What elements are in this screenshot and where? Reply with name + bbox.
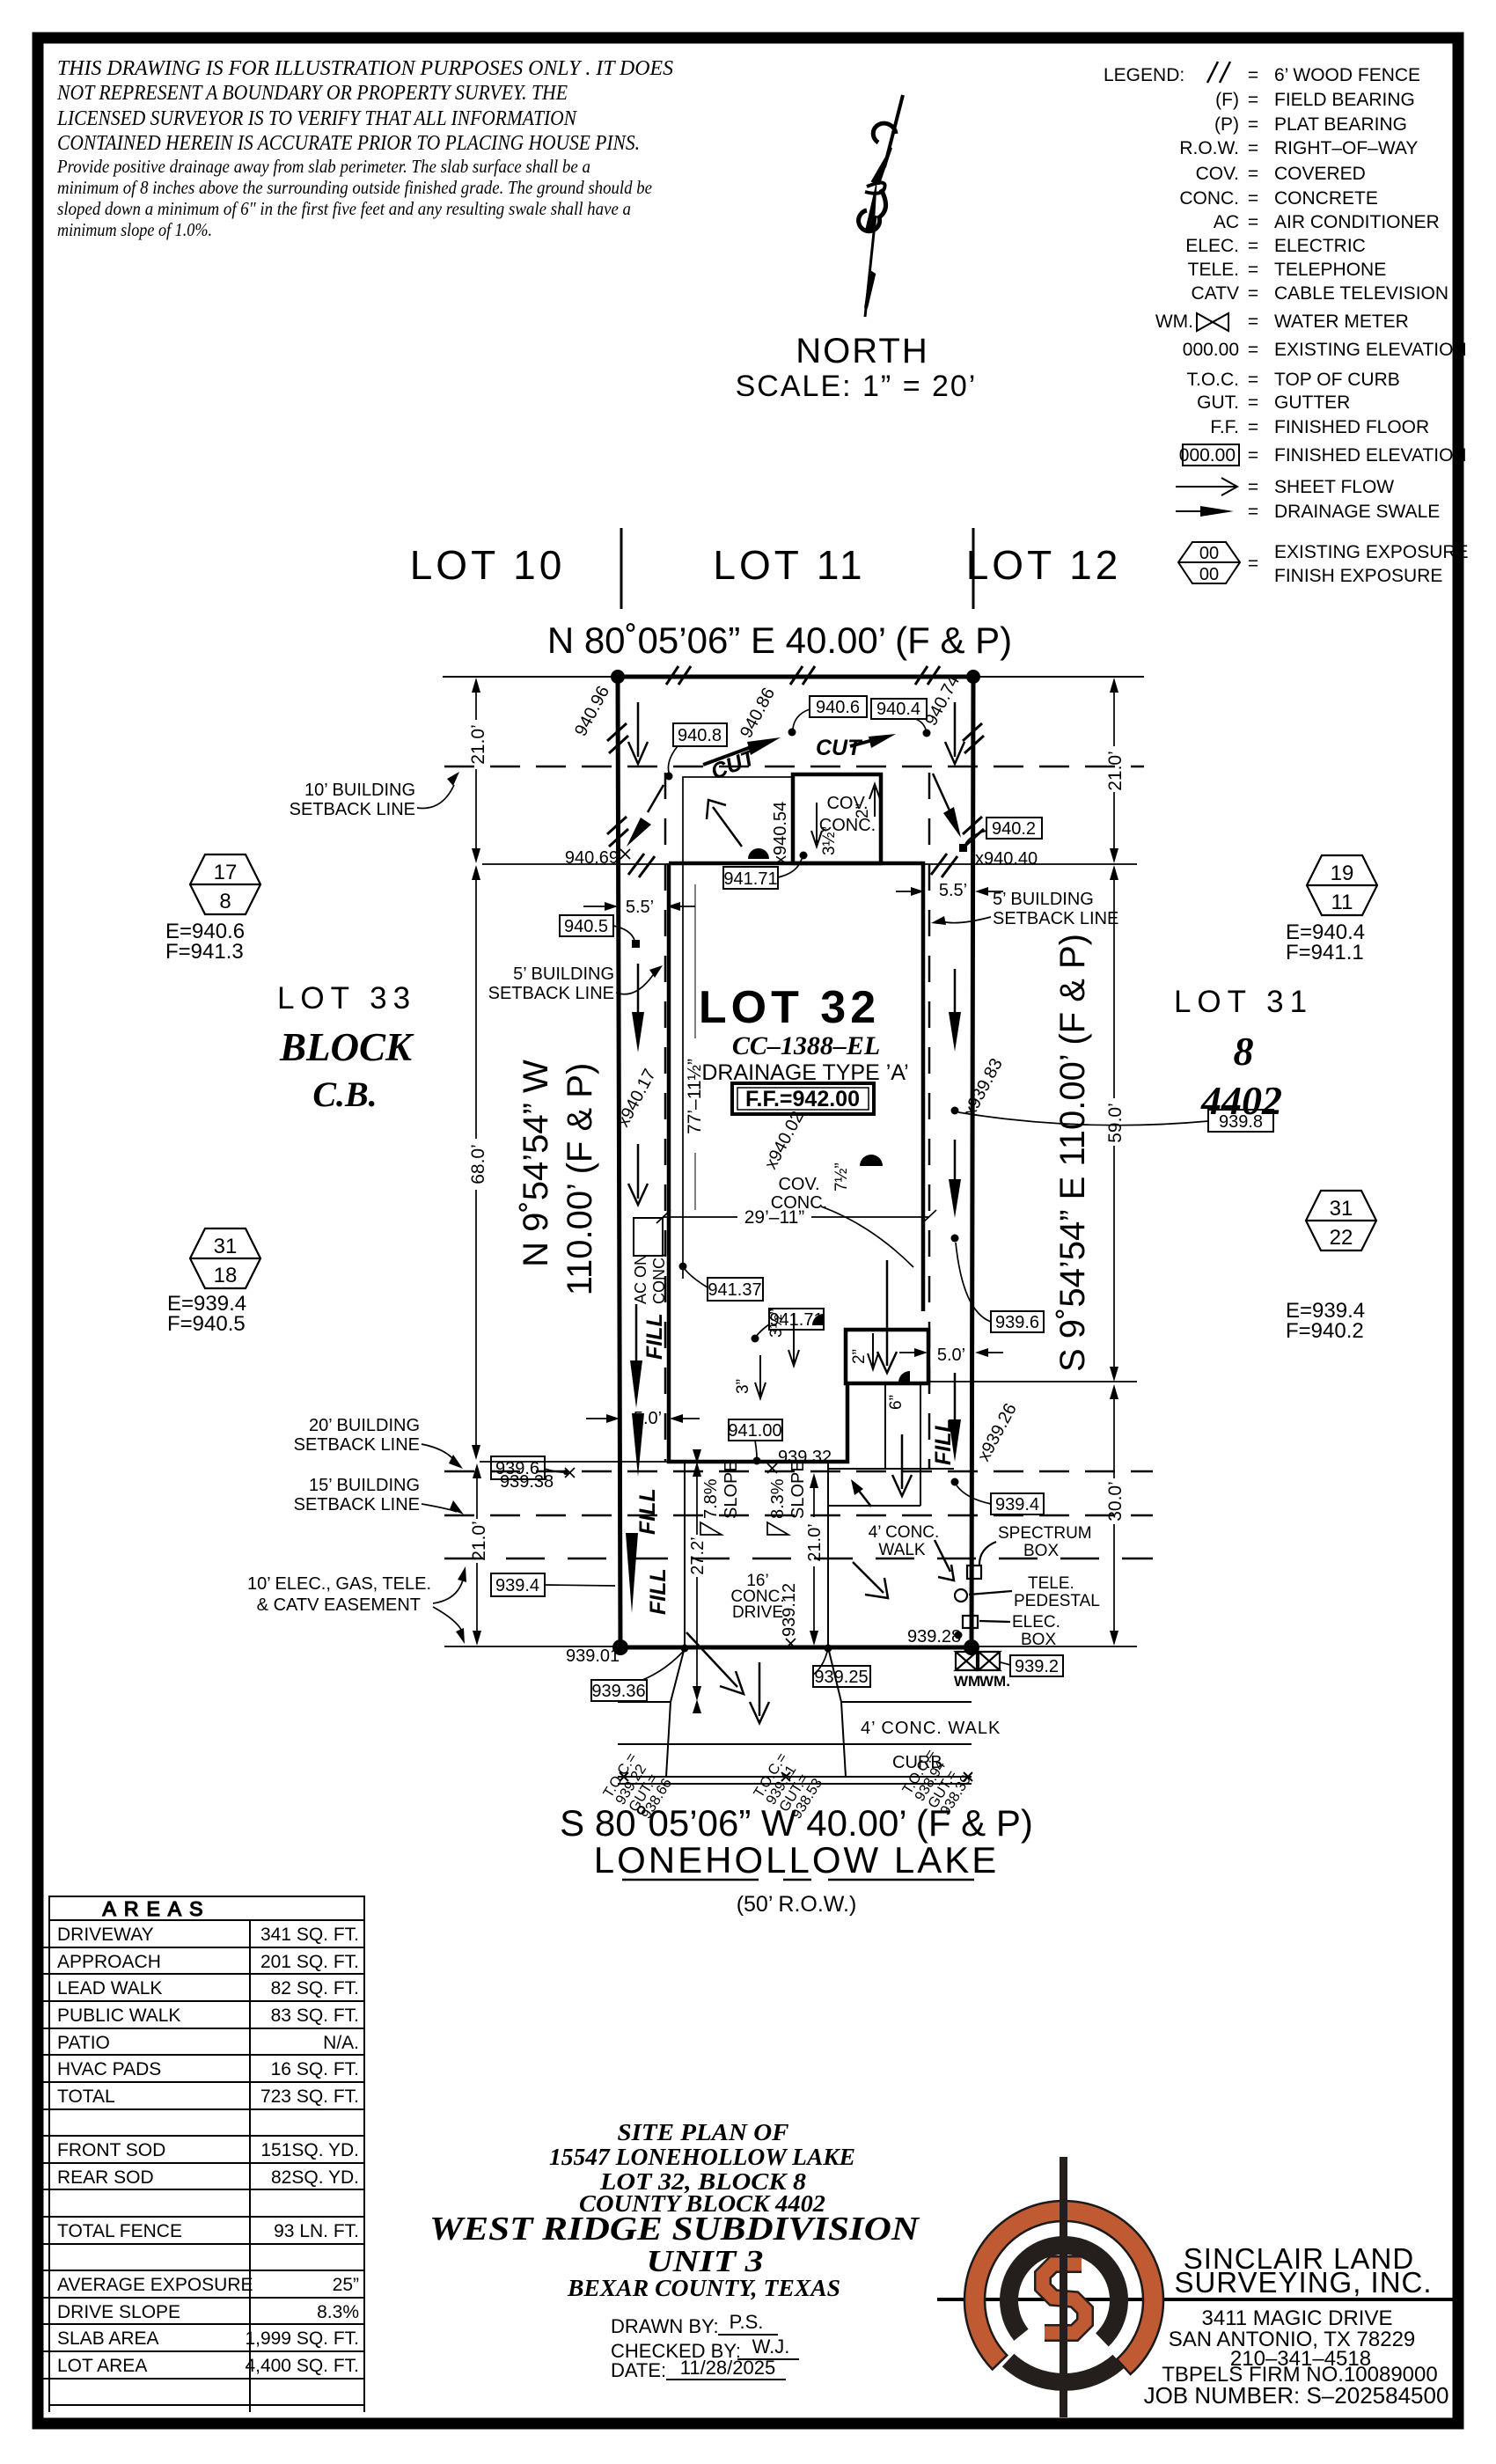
svg-text:723 SQ. FT.: 723 SQ. FT. bbox=[260, 2086, 359, 2107]
svg-text:FILL: FILL bbox=[646, 1568, 671, 1615]
svg-text:941.00: 941.00 bbox=[728, 1421, 781, 1441]
svg-text:WEST RIDGE SUBDIVISION: WEST RIDGE SUBDIVISION bbox=[429, 2211, 920, 2248]
svg-text:FRONT SOD: FRONT SOD bbox=[57, 2140, 165, 2160]
svg-text:LOT 12: LOT 12 bbox=[966, 542, 1122, 588]
svg-text:110.00’ (F & P): 110.00’ (F & P) bbox=[561, 1063, 599, 1296]
svg-text:940.6: 940.6 bbox=[816, 698, 860, 717]
svg-text:LONEHOLLOW LAKE: LONEHOLLOW LAKE bbox=[594, 1839, 999, 1881]
svg-text:4’ CONC.: 4’ CONC. bbox=[869, 1523, 940, 1542]
svg-text:19: 19 bbox=[1331, 862, 1354, 885]
svg-text:CONC.: CONC. bbox=[650, 1253, 668, 1304]
svg-text:SLAB AREA: SLAB AREA bbox=[57, 2328, 159, 2349]
svg-text:PLAT BEARING: PLAT BEARING bbox=[1274, 114, 1407, 135]
svg-text:940.74: 940.74 bbox=[921, 672, 964, 729]
svg-text:TOP OF CURB: TOP OF CURB bbox=[1274, 370, 1400, 390]
svg-text:CATV: CATV bbox=[1192, 283, 1239, 304]
svg-text:ELECTRIC: ELECTRIC bbox=[1274, 236, 1366, 256]
svg-text:REAR SOD: REAR SOD bbox=[57, 2167, 154, 2188]
svg-text:(P): (P) bbox=[1214, 114, 1239, 135]
svg-text:SLOPE: SLOPE bbox=[788, 1460, 808, 1519]
svg-text:JOB NUMBER: S–202584500: JOB NUMBER: S–202584500 bbox=[1144, 2382, 1449, 2409]
svg-text:LEAD WALK: LEAD WALK bbox=[57, 1978, 162, 1998]
svg-text:F.F.: F.F. bbox=[1210, 417, 1239, 437]
svg-text:940.2: 940.2 bbox=[992, 819, 1036, 839]
svg-text:WM.: WM. bbox=[979, 1673, 1010, 1690]
svg-text:00: 00 bbox=[1199, 544, 1219, 563]
svg-text:940.69: 940.69 bbox=[565, 848, 619, 868]
svg-text:=: = bbox=[1248, 212, 1258, 232]
svg-text:=: = bbox=[1248, 236, 1258, 256]
svg-text:F=941.3: F=941.3 bbox=[165, 940, 244, 964]
svg-text:=: = bbox=[1248, 370, 1258, 390]
svg-text:TELEPHONE: TELEPHONE bbox=[1274, 260, 1386, 280]
svg-text:82SQ. YD.: 82SQ. YD. bbox=[271, 2167, 359, 2188]
svg-text:=: = bbox=[1248, 340, 1258, 360]
svg-text:F=940.2: F=940.2 bbox=[1286, 1319, 1364, 1343]
svg-text:GUT.: GUT. bbox=[1197, 392, 1239, 413]
svg-text:30.0’: 30.0’ bbox=[1105, 1481, 1126, 1522]
svg-text:939.36: 939.36 bbox=[591, 1682, 645, 1701]
svg-text:LOT 32: LOT 32 bbox=[699, 982, 880, 1033]
svg-text:940.86: 940.86 bbox=[737, 685, 779, 741]
svg-text:CONC.: CONC. bbox=[1179, 188, 1239, 209]
svg-text:941.37: 941.37 bbox=[708, 1280, 761, 1300]
svg-text:COV.: COV. bbox=[778, 1175, 819, 1194]
svg-text:5.0’: 5.0’ bbox=[937, 1346, 965, 1365]
svg-text:UNIT 3: UNIT 3 bbox=[647, 2244, 764, 2278]
svg-text:SLOPE: SLOPE bbox=[722, 1460, 741, 1519]
svg-text:=: = bbox=[1248, 65, 1258, 85]
svg-text:HVAC PADS: HVAC PADS bbox=[57, 2059, 161, 2079]
svg-text:939.2: 939.2 bbox=[1015, 1657, 1059, 1676]
svg-text:LOT 11: LOT 11 bbox=[713, 542, 865, 588]
svg-text:3½”: 3½” bbox=[767, 1309, 786, 1338]
svg-text:PATIO: PATIO bbox=[57, 2033, 110, 2053]
svg-text:minimum slope of 1.0%.: minimum slope of 1.0%. bbox=[57, 219, 212, 240]
svg-text:& CATV EASEMENT: & CATV EASEMENT bbox=[257, 1595, 421, 1615]
svg-text:LEGEND:: LEGEND: bbox=[1104, 65, 1184, 85]
svg-text:AIR CONDITIONER: AIR CONDITIONER bbox=[1274, 212, 1440, 232]
svg-text:COVERED: COVERED bbox=[1274, 164, 1366, 184]
svg-text:AVERAGE EXPOSURE: AVERAGE EXPOSURE bbox=[57, 2275, 253, 2295]
svg-text:939.25: 939.25 bbox=[814, 1668, 868, 1687]
svg-text:DRIVE SLOPE: DRIVE SLOPE bbox=[57, 2302, 180, 2322]
svg-text:22: 22 bbox=[1330, 1226, 1353, 1250]
svg-text:LOT 33: LOT 33 bbox=[277, 981, 416, 1016]
svg-text:7½”: 7½” bbox=[832, 1162, 851, 1192]
svg-text:=: = bbox=[1248, 283, 1258, 304]
svg-text:939.4: 939.4 bbox=[995, 1495, 1039, 1514]
svg-text:940.4: 940.4 bbox=[876, 700, 920, 719]
svg-text:4’ CONC. WALK: 4’ CONC. WALK bbox=[861, 1719, 1001, 1738]
svg-text:8.3%: 8.3% bbox=[768, 1478, 788, 1519]
svg-text:SETBACK LINE: SETBACK LINE bbox=[294, 1495, 420, 1514]
svg-text:AC: AC bbox=[1214, 212, 1239, 232]
svg-text:16 SQ. FT.: 16 SQ. FT. bbox=[271, 2059, 359, 2079]
svg-text:FINISH EXPOSURE: FINISH EXPOSURE bbox=[1274, 566, 1442, 586]
svg-text:=: = bbox=[1248, 445, 1258, 466]
svg-text:SPECTRUM: SPECTRUM bbox=[998, 1524, 1092, 1543]
svg-text:CABLE TELEVISION: CABLE TELEVISION bbox=[1274, 283, 1448, 304]
svg-text:SETBACK LINE: SETBACK LINE bbox=[290, 800, 415, 819]
svg-text:939.6: 939.6 bbox=[995, 1313, 1039, 1332]
svg-text:ELEC.: ELEC. bbox=[1185, 236, 1239, 256]
svg-text:59.0’: 59.0’ bbox=[1105, 1103, 1126, 1143]
svg-text:FIELD BEARING: FIELD BEARING bbox=[1274, 90, 1415, 110]
svg-text:=: = bbox=[1248, 502, 1258, 522]
svg-text:2”: 2” bbox=[850, 1349, 869, 1364]
svg-text:3411 MAGIC DRIVE: 3411 MAGIC DRIVE bbox=[1202, 2306, 1393, 2330]
svg-text:18: 18 bbox=[214, 1264, 238, 1287]
svg-text:TOTAL FENCE: TOTAL FENCE bbox=[57, 2221, 182, 2241]
svg-text:SETBACK LINE: SETBACK LINE bbox=[488, 984, 614, 1003]
svg-text:x940.54: x940.54 bbox=[771, 802, 790, 864]
svg-text:AREAS: AREAS bbox=[103, 1897, 211, 1920]
svg-text:FILL: FILL bbox=[635, 1488, 660, 1535]
svg-text:PEDESTAL: PEDESTAL bbox=[1014, 1592, 1100, 1610]
svg-text:000.00: 000.00 bbox=[1183, 340, 1239, 360]
svg-text:8: 8 bbox=[1234, 1029, 1254, 1074]
svg-text:RIGHT–OF–WAY: RIGHT–OF–WAY bbox=[1274, 138, 1418, 158]
svg-text:P.S.: P.S. bbox=[730, 2311, 764, 2333]
svg-text:SHEET FLOW: SHEET FLOW bbox=[1274, 477, 1394, 497]
svg-text:21.0’: 21.0’ bbox=[469, 1521, 489, 1561]
svg-text:F.F.=942.00: F.F.=942.00 bbox=[745, 1087, 860, 1111]
svg-text:=: = bbox=[1248, 477, 1258, 497]
svg-text:W.J.: W.J. bbox=[752, 2336, 790, 2358]
svg-text:BOX: BOX bbox=[1021, 1631, 1056, 1649]
svg-text:Provide positive drainage away: Provide positive drainage away from slab… bbox=[56, 156, 590, 177]
svg-text:2”: 2” bbox=[854, 803, 872, 818]
svg-text:83 SQ. FT.: 83 SQ. FT. bbox=[271, 2006, 359, 2026]
svg-text:=: = bbox=[1248, 312, 1258, 332]
svg-text:DRAINAGE SWALE: DRAINAGE SWALE bbox=[1274, 502, 1440, 522]
svg-text:ELEC.: ELEC. bbox=[1012, 1613, 1060, 1632]
svg-text:151SQ. YD.: 151SQ. YD. bbox=[260, 2140, 359, 2160]
svg-text:PUBLIC WALK: PUBLIC WALK bbox=[57, 2006, 180, 2026]
svg-text:CUT: CUT bbox=[816, 736, 863, 760]
svg-text:minimum of 8 inches above the: minimum of 8 inches above the surroundin… bbox=[57, 177, 652, 198]
svg-text:=: = bbox=[1248, 164, 1258, 184]
svg-text:939.01: 939.01 bbox=[566, 1646, 620, 1666]
svg-text:3”: 3” bbox=[734, 1379, 752, 1394]
svg-text:SETBACK LINE: SETBACK LINE bbox=[993, 909, 1118, 928]
svg-text:TOTAL: TOTAL bbox=[57, 2086, 115, 2107]
svg-text:CC–1388–EL: CC–1388–EL bbox=[732, 1031, 880, 1060]
svg-text:5.0’: 5.0’ bbox=[634, 1409, 662, 1428]
svg-text:FILL: FILL bbox=[931, 1419, 956, 1465]
svg-text:DRAWN BY:: DRAWN BY: bbox=[611, 2315, 719, 2337]
svg-text:DRIVE: DRIVE bbox=[732, 1603, 783, 1622]
svg-text:77’–11½”: 77’–11½” bbox=[685, 1059, 705, 1134]
svg-text:WM.: WM. bbox=[1155, 312, 1193, 332]
svg-text:=: = bbox=[1248, 114, 1258, 135]
svg-text:21.0’: 21.0’ bbox=[1105, 751, 1126, 791]
svg-text:BEXAR COUNTY, TEXAS: BEXAR COUNTY, TEXAS bbox=[567, 2275, 840, 2301]
svg-text:941.71: 941.71 bbox=[723, 869, 777, 889]
svg-text:17: 17 bbox=[214, 861, 238, 884]
svg-text:SURVEYING, INC.: SURVEYING, INC. bbox=[1174, 2266, 1432, 2299]
svg-text:x940.40: x940.40 bbox=[975, 849, 1038, 869]
svg-text:NOT REPRESENT A BOUNDARY OR PR: NOT REPRESENT A BOUNDARY OR PROPERTY SUR… bbox=[56, 82, 568, 105]
svg-text:x939.26: x939.26 bbox=[974, 1400, 1021, 1464]
svg-text:S 9˚54’54” E 110.00’ (F & P): S 9˚54’54” E 110.00’ (F & P) bbox=[1053, 934, 1092, 1372]
svg-text:(F): (F) bbox=[1215, 90, 1239, 110]
svg-text:4402: 4402 bbox=[1200, 1078, 1282, 1123]
svg-text:THIS DRAWING IS FOR ILLUSTRATI: THIS DRAWING IS FOR ILLUSTRATION PURPOSE… bbox=[57, 57, 673, 80]
svg-text:APPROACH: APPROACH bbox=[57, 1952, 161, 1972]
svg-text:5.5’: 5.5’ bbox=[626, 898, 654, 917]
svg-text:11: 11 bbox=[1331, 891, 1353, 914]
svg-text:4,400 SQ. FT.: 4,400 SQ. FT. bbox=[245, 2356, 359, 2376]
svg-text:BOX: BOX bbox=[1023, 1542, 1059, 1560]
svg-text:F=941.1: F=941.1 bbox=[1286, 941, 1364, 964]
svg-text:FINISHED ELEVATION: FINISHED ELEVATION bbox=[1274, 445, 1467, 466]
svg-text:6”: 6” bbox=[887, 1395, 906, 1410]
svg-text:LOT 10: LOT 10 bbox=[410, 542, 566, 588]
svg-text:=: = bbox=[1248, 554, 1258, 574]
svg-text:=: = bbox=[1248, 392, 1258, 413]
svg-text:82 SQ. FT.: 82 SQ. FT. bbox=[271, 1978, 359, 1998]
svg-text:DRIVEWAY: DRIVEWAY bbox=[57, 1925, 154, 1945]
svg-text:(50’ R.O.W.): (50’ R.O.W.) bbox=[737, 1892, 857, 1917]
svg-text:F=940.5: F=940.5 bbox=[167, 1312, 246, 1336]
svg-text:FILL: FILL bbox=[642, 1313, 667, 1360]
svg-text:7.8%: 7.8% bbox=[701, 1478, 721, 1519]
svg-text:N 9˚54’54” W: N 9˚54’54” W bbox=[517, 1060, 555, 1267]
svg-text:1,999 SQ. FT.: 1,999 SQ. FT. bbox=[245, 2328, 359, 2349]
svg-text:AC ON: AC ON bbox=[632, 1254, 649, 1304]
svg-text:8.3%: 8.3% bbox=[317, 2302, 359, 2322]
svg-text:S 80˚05’06” W 40.00’ (F & P): S 80˚05’06” W 40.00’ (F & P) bbox=[560, 1802, 1033, 1844]
svg-text:DATE:: DATE: bbox=[611, 2359, 666, 2381]
svg-text:940.8: 940.8 bbox=[678, 726, 722, 745]
svg-text:LOT 31: LOT 31 bbox=[1174, 985, 1313, 1019]
svg-text:5’ BUILDING: 5’ BUILDING bbox=[513, 964, 614, 984]
svg-text:21.0’: 21.0’ bbox=[468, 724, 488, 765]
svg-text:CONC.: CONC. bbox=[771, 1193, 827, 1213]
svg-text:CONTAINED HEREIN IS ACCURATE P: CONTAINED HEREIN IS ACCURATE PRIOR TO PL… bbox=[57, 132, 640, 155]
svg-text:N 80˚05’06” E 40.00’ (F & P): N 80˚05’06” E 40.00’ (F & P) bbox=[547, 620, 1012, 661]
svg-text:GUTTER: GUTTER bbox=[1274, 392, 1350, 413]
svg-text:939.28: 939.28 bbox=[907, 1627, 961, 1646]
svg-text:sloped down a minimum of 6" in: sloped down a minimum of 6" in the first… bbox=[57, 198, 631, 219]
svg-text:940.96: 940.96 bbox=[571, 683, 613, 739]
svg-text:940.5: 940.5 bbox=[564, 917, 608, 936]
svg-text:=: = bbox=[1248, 90, 1258, 110]
svg-text:20’ BUILDING: 20’ BUILDING bbox=[309, 1416, 420, 1435]
svg-text:6’ WOOD FENCE: 6’ WOOD FENCE bbox=[1274, 65, 1420, 85]
svg-text:68.0’: 68.0’ bbox=[468, 1144, 488, 1184]
svg-text:939.6: 939.6 bbox=[495, 1459, 539, 1478]
svg-text:=: = bbox=[1248, 260, 1258, 280]
svg-text:COV.: COV. bbox=[1196, 164, 1239, 184]
svg-text:LOT AREA: LOT AREA bbox=[57, 2356, 147, 2376]
svg-text:R.O.W.: R.O.W. bbox=[1179, 138, 1239, 158]
svg-text:N/A.: N/A. bbox=[323, 2033, 359, 2053]
svg-text:3½”: 3½” bbox=[820, 826, 839, 855]
svg-text:LICENSED SURVEYOR IS TO VERIFY: LICENSED SURVEYOR IS TO VERIFY THAT ALL … bbox=[56, 107, 578, 130]
svg-text:15’ BUILDING: 15’ BUILDING bbox=[309, 1476, 420, 1495]
svg-text:TELE.: TELE. bbox=[1028, 1574, 1074, 1593]
svg-text:93 LN. FT.: 93 LN. FT. bbox=[274, 2221, 359, 2241]
svg-text:x939.83: x939.83 bbox=[960, 1055, 1007, 1119]
svg-text:WALK: WALK bbox=[878, 1541, 925, 1559]
svg-text:31: 31 bbox=[214, 1235, 238, 1258]
svg-text:SETBACK LINE: SETBACK LINE bbox=[294, 1435, 420, 1455]
svg-text:EXISTING EXPOSURE: EXISTING EXPOSURE bbox=[1274, 542, 1469, 562]
svg-text:00: 00 bbox=[1199, 565, 1219, 584]
svg-text:000.00: 000.00 bbox=[1179, 445, 1236, 466]
svg-text:5’ BUILDING: 5’ BUILDING bbox=[993, 890, 1094, 909]
svg-text:EXISTING ELEVATION: EXISTING ELEVATION bbox=[1274, 340, 1467, 360]
svg-text:5.5’: 5.5’ bbox=[939, 881, 967, 900]
svg-text:T.O.C.: T.O.C. bbox=[1186, 370, 1239, 390]
svg-text:=: = bbox=[1248, 188, 1258, 209]
svg-text:25”: 25” bbox=[333, 2275, 359, 2295]
svg-text:C.B.: C.B. bbox=[312, 1074, 377, 1114]
svg-text:FINISHED FLOOR: FINISHED FLOOR bbox=[1274, 417, 1429, 437]
svg-text:NORTH: NORTH bbox=[796, 332, 928, 370]
svg-text:341 SQ. FT.: 341 SQ. FT. bbox=[260, 1925, 359, 1945]
svg-text:27.2’: 27.2’ bbox=[688, 1536, 708, 1574]
svg-text:x940.02: x940.02 bbox=[761, 1108, 808, 1172]
svg-text:10’ ELEC., GAS, TELE.: 10’ ELEC., GAS, TELE. bbox=[247, 1574, 431, 1594]
svg-text:BLOCK: BLOCK bbox=[279, 1025, 414, 1069]
svg-text:10’ BUILDING: 10’ BUILDING bbox=[304, 781, 415, 800]
svg-text:TELE.: TELE. bbox=[1188, 260, 1239, 280]
svg-text:CONCRETE: CONCRETE bbox=[1274, 188, 1378, 209]
svg-text:8: 8 bbox=[219, 890, 231, 913]
svg-text:=: = bbox=[1248, 417, 1258, 437]
svg-text:201 SQ. FT.: 201 SQ. FT. bbox=[260, 1952, 359, 1972]
svg-text:21.0’: 21.0’ bbox=[805, 1523, 825, 1561]
svg-text:15547 LONEHOLLOW LAKE: 15547 LONEHOLLOW LAKE bbox=[549, 2144, 855, 2170]
svg-text:SITE PLAN OF: SITE PLAN OF bbox=[618, 2119, 789, 2145]
svg-text:WATER METER: WATER METER bbox=[1274, 312, 1409, 332]
svg-text:31: 31 bbox=[1330, 1197, 1353, 1221]
svg-text:939.4: 939.4 bbox=[495, 1576, 539, 1595]
svg-text:DRAINAGE TYPE ’A’: DRAINAGE TYPE ’A’ bbox=[701, 1060, 908, 1085]
svg-text:=: = bbox=[1248, 138, 1258, 158]
svg-text:SCALE: 1” = 20’: SCALE: 1” = 20’ bbox=[736, 370, 978, 403]
